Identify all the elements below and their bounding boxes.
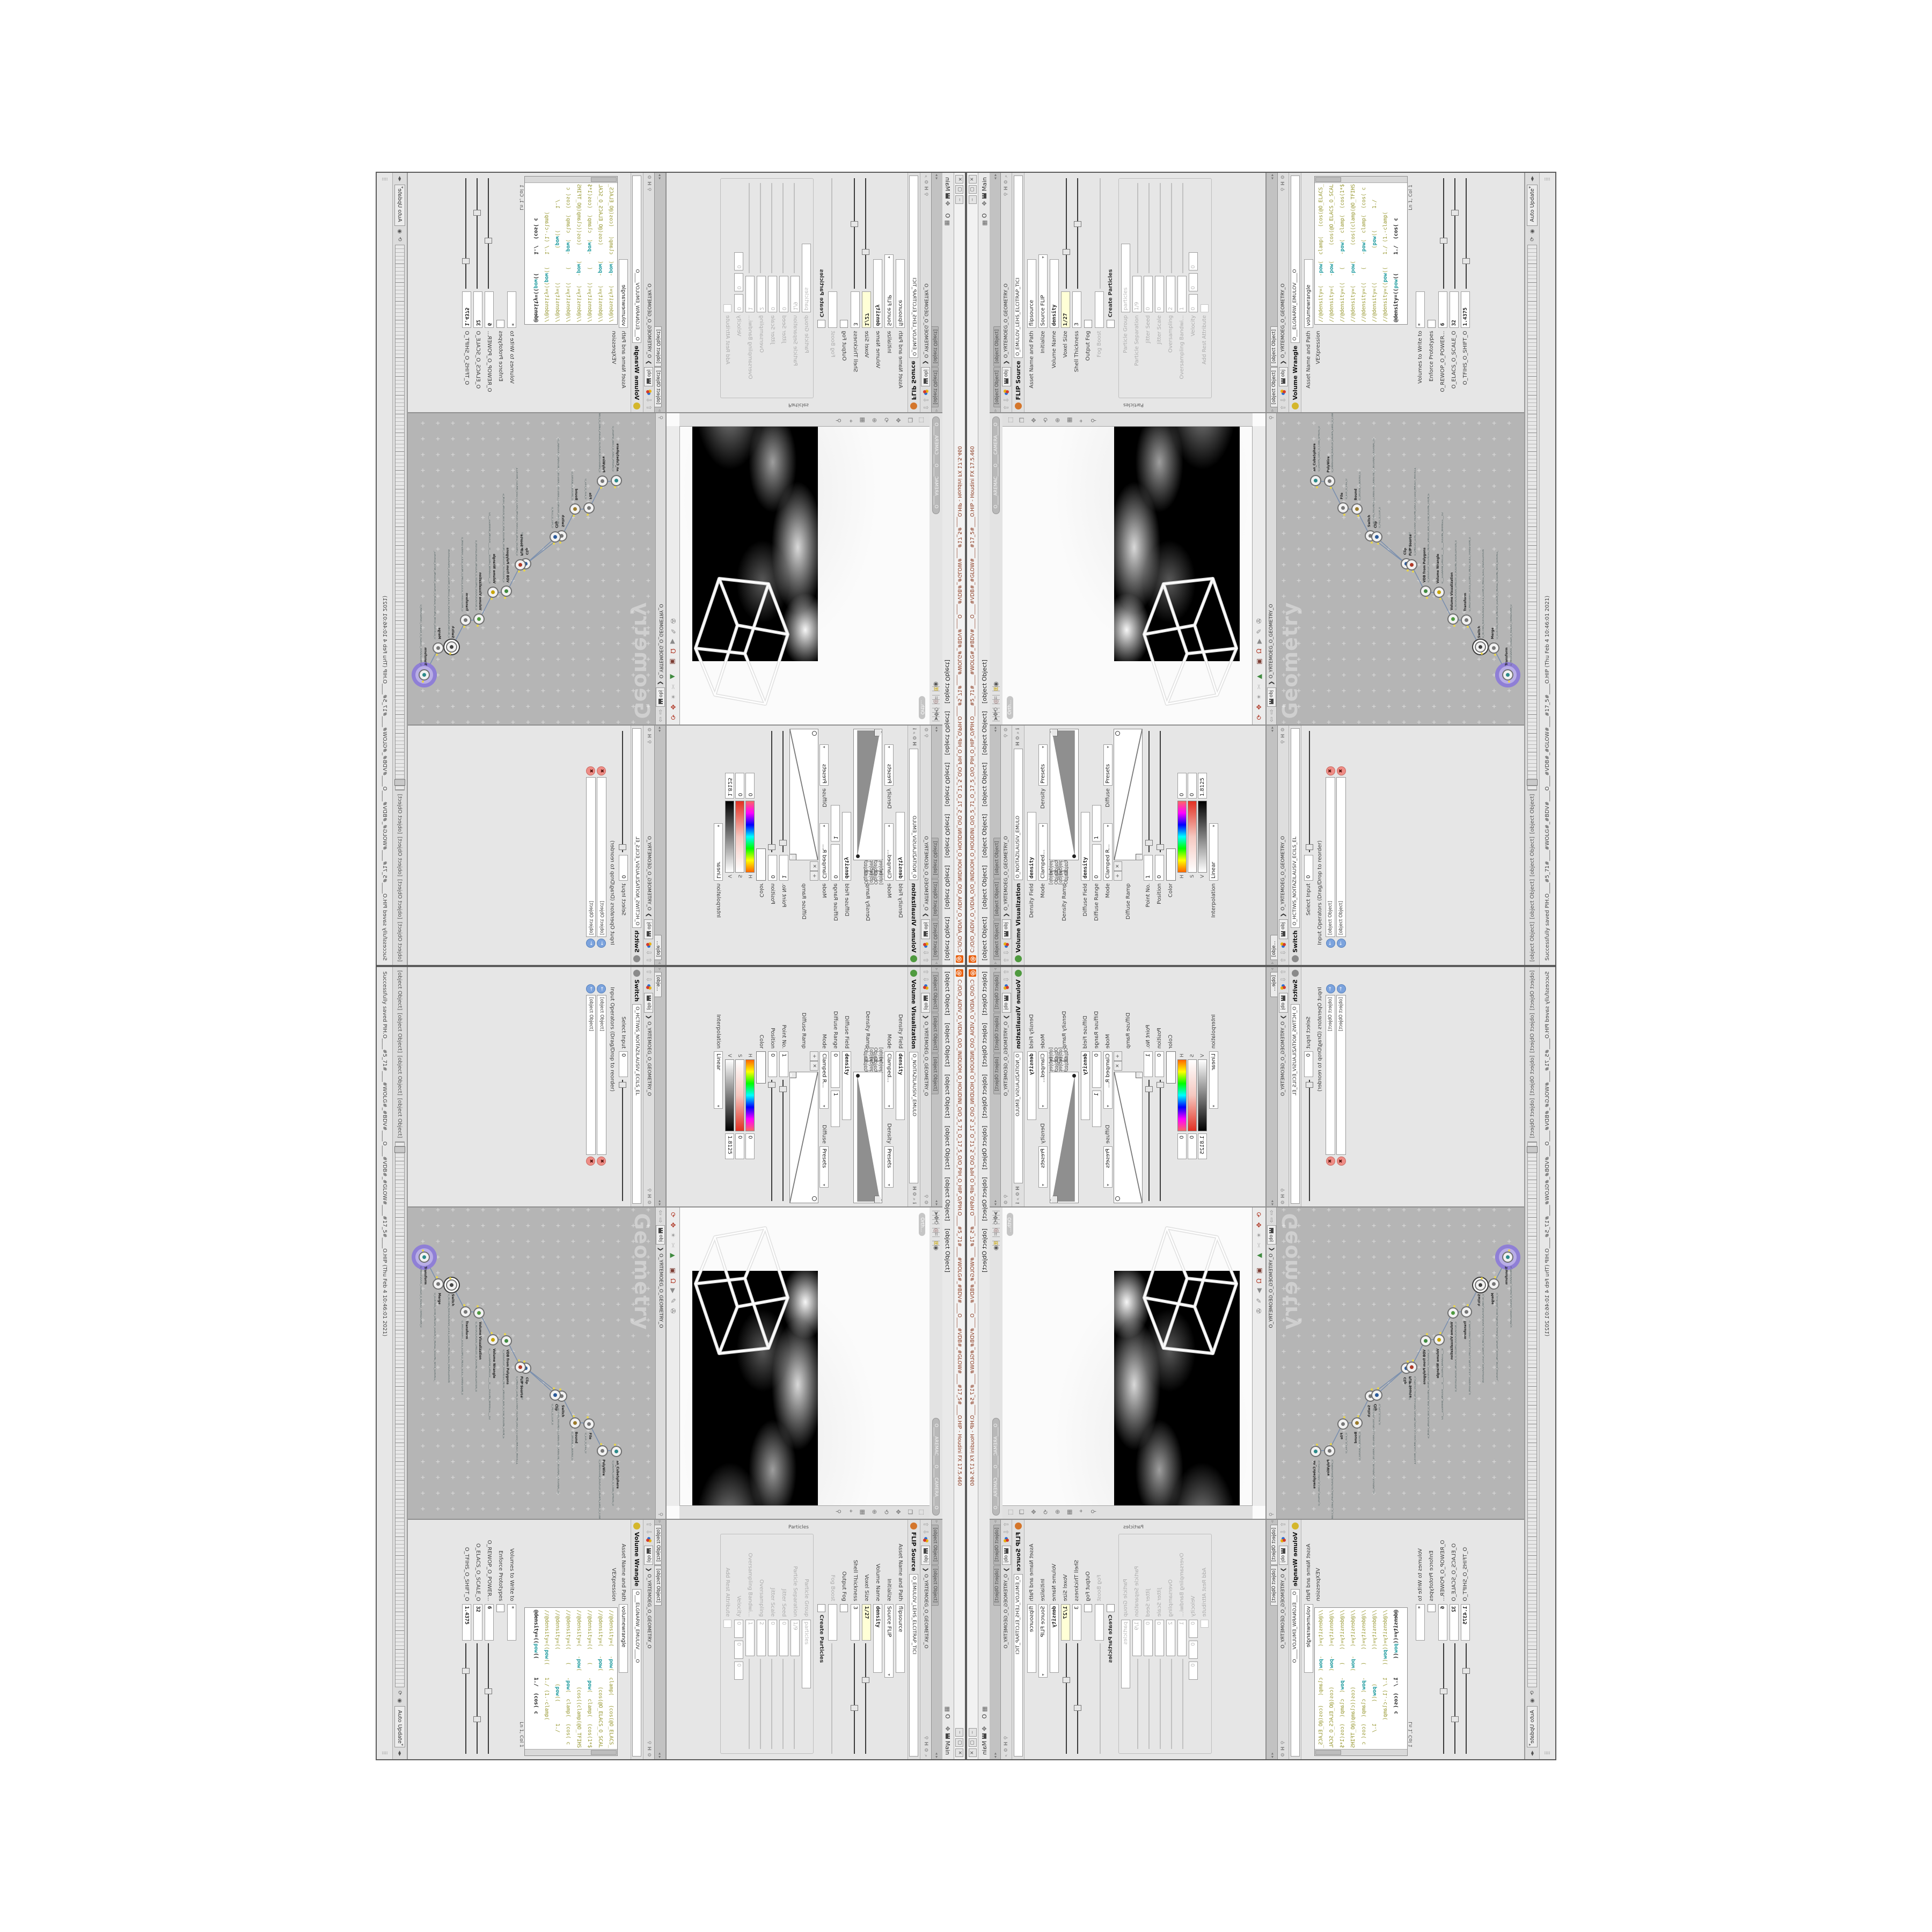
- transport-button[interactable]: [object Object]: [1529, 794, 1535, 834]
- pane-tab[interactable]: [object Object]: [932, 920, 939, 960]
- select-input-slider[interactable]: [620, 729, 627, 852]
- breadcrumb[interactable]: O_YRTEMOEG_O_GEOMETRY_O: [923, 1021, 928, 1096]
- viewport-canvas[interactable]: Orth...: [679, 426, 930, 724]
- select-input-slider[interactable]: [620, 1080, 627, 1203]
- viewport-tool-icon[interactable]: Ω: [669, 649, 677, 654]
- viewport-tool-icon[interactable]: ⟲: [883, 1509, 890, 1514]
- ramp-button[interactable]: +: [810, 1051, 818, 1061]
- point-no-slider[interactable]: [1145, 729, 1152, 852]
- oversampling-bandwidth-field[interactable]: 1: [745, 1620, 755, 1656]
- diffuse-presets-dropdown[interactable]: Presets: [819, 744, 829, 786]
- create-particles-checkbox[interactable]: [1107, 1604, 1115, 1612]
- pane-split-icon[interactable]: ▹: [934, 968, 939, 970]
- add-rest-checkbox[interactable]: [1201, 1620, 1209, 1628]
- initialize-dropdown[interactable]: Source FLIP: [884, 254, 894, 328]
- select-input-field[interactable]: 0: [1304, 855, 1313, 881]
- viewport-tool-icon[interactable]: ✎: [669, 628, 677, 634]
- nav-forward-icon[interactable]: ⇩: [1002, 397, 1010, 402]
- jitter-seed-field[interactable]: 0: [1144, 276, 1153, 312]
- network-node[interactable]: VDB from PolygonsO_SNOGYLOP_YRTEMOEG_MOR…: [1420, 586, 1431, 597]
- context-chip[interactable]: obj: [921, 367, 931, 387]
- network-node[interactable]: FLIP SourceO_EMULOV_LEHS_ELCITRAP_TICILP…: [515, 559, 526, 570]
- remove-input-icon[interactable]: ✖: [597, 766, 606, 775]
- ramp-button[interactable]: ✕: [810, 1061, 818, 1071]
- pane-tab[interactable]: [object Object]: [993, 972, 1000, 1012]
- nav-back-icon[interactable]: ⇦: [1268, 1210, 1275, 1215]
- pane-menu-icon[interactable]: ◂ ▸: [934, 174, 939, 180]
- fog-boost-slider[interactable]: [1096, 176, 1103, 289]
- output-fog-checkbox[interactable]: [1084, 320, 1092, 328]
- power-field[interactable]: 6: [1438, 1604, 1447, 1641]
- display-options-icon[interactable]: ◉: [1529, 1699, 1535, 1703]
- velocity-y-field[interactable]: 0: [734, 1641, 743, 1659]
- diffuse-range-min-input[interactable]: 0: [1092, 844, 1101, 881]
- pane-split-icon[interactable]: ▹: [1270, 968, 1275, 970]
- transport-button[interactable]: [object Object]: [397, 879, 403, 919]
- nav-forward-icon[interactable]: ⇩: [645, 950, 653, 955]
- position-slider[interactable]: [1156, 729, 1163, 852]
- viewport-tool-icon[interactable]: ✎: [669, 1298, 677, 1304]
- search-icon[interactable]: ⌕: [911, 731, 917, 734]
- viewport-tool-icon[interactable]: ⚲: [1090, 417, 1097, 422]
- pane-tab[interactable]: [object Object]: [1270, 326, 1277, 367]
- viewport-tool-icon[interactable]: ⊞: [932, 691, 940, 691]
- nav-forward-icon[interactable]: ⇩: [922, 397, 930, 402]
- asset-name-field[interactable]: flipsource: [896, 1604, 905, 1673]
- viewport-tool-icon[interactable]: ✇: [669, 1308, 677, 1314]
- viewport-tool-icon[interactable]: ✎: [1255, 1298, 1263, 1304]
- pane-arrows-icon[interactable]: ◂▸: [1529, 176, 1535, 181]
- node-name-field[interactable]: O_NOITAZILAUSIV_EMULO: [1014, 1052, 1023, 1184]
- mode-dropdown[interactable]: Clamped...: [1038, 823, 1048, 881]
- jitter-seed-field[interactable]: 0: [1144, 1620, 1153, 1656]
- network-node[interactable]: BoundO_DNUOB_O_BOUND_O: [1351, 503, 1363, 515]
- particle-separation-field[interactable]: 1/9: [1132, 276, 1141, 312]
- pin-icon[interactable]: ⚲: [658, 1512, 664, 1516]
- mode-dropdown[interactable]: Clamped...: [884, 823, 894, 881]
- jitter-seed-field[interactable]: 0: [779, 1620, 788, 1656]
- pane-tab[interactable]: [object Object]: [1270, 367, 1277, 407]
- velocity-y-field[interactable]: 0: [734, 273, 743, 291]
- voxel-size-field[interactable]: 1/27: [862, 291, 871, 328]
- asset-name-field[interactable]: flipsource: [1027, 1604, 1036, 1673]
- output-fog-checkbox[interactable]: [840, 1604, 848, 1612]
- viewport-tool-icon[interactable]: ◎: [992, 704, 1000, 704]
- asset-name-field[interactable]: volumewrangle: [1304, 1604, 1313, 1673]
- breadcrumb[interactable]: O_YRTEMOEG_O_GEOMETRY_O: [1280, 1574, 1286, 1649]
- power-slider[interactable]: [1439, 1643, 1447, 1756]
- network-node[interactable]: MergeO_ECAFRUS_HTIW_EMULOV_EGREM_O_MERGE…: [433, 642, 444, 654]
- network-node[interactable]: PolyWireO_EMANFERIW_NOGYLOP_EREHPS_EBUC_…: [1324, 475, 1335, 487]
- context-chip[interactable]: obj: [656, 1225, 665, 1245]
- menu-item[interactable]: [object Object]: [945, 1023, 952, 1067]
- position-input[interactable]: 0: [768, 1051, 777, 1077]
- viewport-tool-icon[interactable]: ✂: [1255, 1243, 1263, 1248]
- transport-button[interactable]: [object Object]: [1529, 1098, 1535, 1138]
- breadcrumb[interactable]: O_YRTEMOEG_O_GEOMETRY_O: [1004, 283, 1009, 358]
- menu-item[interactable]: [object Object]: [945, 1125, 952, 1169]
- viewport-tool-icon[interactable]: ▣: [1255, 1268, 1263, 1274]
- ramp-button[interactable]: +: [810, 871, 818, 881]
- input-operator-field[interactable]: [object Object]: [1336, 777, 1346, 937]
- oversampling-slider[interactable]: [758, 1659, 765, 1751]
- enforce-prototypes-checkbox[interactable]: [496, 320, 504, 328]
- hscript-icon[interactable]: H: [1280, 181, 1286, 186]
- context-chip[interactable]: obj: [1267, 1225, 1276, 1245]
- enforce-prototypes-checkbox[interactable]: [1428, 1604, 1436, 1612]
- viewport-tool-icon[interactable]: ⌗: [992, 1232, 1000, 1233]
- layout-selector[interactable]: ▦ O: [981, 213, 988, 225]
- node-name-field[interactable]: O_EMULOV_LEHS_ELCITRAP_TICI: [910, 175, 919, 358]
- viewport-tool-icon[interactable]: ⊕: [871, 1509, 878, 1514]
- viewport-tool-icon[interactable]: ⟲: [992, 712, 1000, 713]
- viewport-tool-icon[interactable]: ✴: [1255, 1233, 1263, 1238]
- input-operator-field[interactable]: [object Object]: [1336, 995, 1346, 1155]
- transport-button[interactable]: [object Object]: [397, 837, 403, 876]
- interpolation-dropdown[interactable]: Linear: [714, 1051, 723, 1109]
- nav-forward-icon[interactable]: ⇩: [1002, 1529, 1010, 1535]
- breadcrumb[interactable]: O_YRTEMOEG_O_GEOMETRY_O: [1280, 283, 1286, 358]
- oversampling-slider[interactable]: [758, 181, 765, 273]
- viewport-tool-icon[interactable]: ⟲: [1042, 1509, 1049, 1514]
- position-slider[interactable]: [1156, 1080, 1163, 1203]
- viewport-tool-icon[interactable]: ▲: [669, 674, 677, 679]
- nav-forward-icon[interactable]: ⇩: [1002, 950, 1010, 955]
- viewport-tool-icon[interactable]: ✥: [932, 716, 940, 717]
- view-label-pill[interactable]: Orth...: [919, 696, 925, 719]
- vex-code-editor[interactable]: //@density=( -pow( clamp( (cos(@O_ELACS_…: [524, 176, 618, 325]
- shell-thickness-slider[interactable]: [852, 1643, 859, 1756]
- pin-icon[interactable]: ⚲: [1280, 740, 1286, 744]
- pane-tab[interactable]: [object Object]: [932, 1053, 939, 1094]
- network-node[interactable]: ClipO_PILC_O_CLIP_O: [1371, 531, 1382, 543]
- hsv-gradient-slider[interactable]: [1177, 1059, 1187, 1131]
- position-slider[interactable]: [769, 1080, 777, 1203]
- viewport-tool-icon[interactable]: ✥: [1030, 417, 1037, 422]
- pane-split-icon[interactable]: ▹: [1270, 409, 1275, 411]
- voxel-size-field[interactable]: 1/27: [1061, 291, 1070, 328]
- pin-icon[interactable]: ⚲: [923, 1195, 928, 1198]
- nav-back-icon[interactable]: ⇧: [1279, 405, 1287, 410]
- playhead[interactable]: [1527, 780, 1538, 786]
- camera-selector-pill[interactable]: O____AREMAC____O____CAMERA____O: [992, 1418, 1000, 1516]
- hscript-icon[interactable]: H: [923, 186, 928, 191]
- network-node[interactable]: VDB from PolygonsO_SNOGYLOP_YRTEMOEG_MOR…: [501, 1335, 512, 1346]
- viewport-tool-icon[interactable]: ⬚: [1007, 417, 1014, 422]
- add-rest-checkbox[interactable]: [723, 1620, 731, 1628]
- diffuse-presets-dropdown[interactable]: Presets: [1103, 744, 1113, 786]
- viewport-tool-icon[interactable]: ▣: [1255, 658, 1263, 664]
- interpolation-dropdown[interactable]: Linear: [1209, 823, 1218, 881]
- gear-icon[interactable]: ⚙: [1280, 1753, 1286, 1757]
- volume-name-field[interactable]: density: [1050, 259, 1059, 328]
- hscript-icon[interactable]: H: [1280, 1746, 1286, 1751]
- hscript-icon[interactable]: H: [646, 734, 652, 738]
- velocity-z-field[interactable]: 0: [1189, 1662, 1198, 1680]
- viewport-tool-icon[interactable]: ✥: [1255, 704, 1263, 709]
- jitter-seed-slider[interactable]: [1145, 181, 1152, 273]
- breadcrumb[interactable]: O_YRTEMOEG_O_GEOMETRY_O: [1004, 1021, 1009, 1096]
- reorder-arrow-icon[interactable]: ←: [1326, 939, 1335, 948]
- network-canvas[interactable]: an_CubeSphereO_EREHPS_EBUC_O_CUBE_SPHERE…: [1277, 413, 1524, 724]
- scale-field[interactable]: 32: [1450, 291, 1459, 328]
- context-chip[interactable]: obj: [645, 1546, 654, 1565]
- hscript-icon[interactable]: H: [1015, 1186, 1021, 1190]
- shift-field[interactable]: 1.4375: [462, 1604, 471, 1641]
- gear-icon[interactable]: ⚙: [923, 1200, 928, 1204]
- pane-tab[interactable]: [object Object]: [655, 935, 662, 960]
- nav-back-icon[interactable]: ⇧: [1002, 969, 1010, 975]
- position-slider[interactable]: [769, 729, 777, 852]
- nav-forward-icon[interactable]: ⇩: [1279, 1529, 1287, 1535]
- pin-icon[interactable]: ⚲: [658, 415, 664, 419]
- viewport-tool-icon[interactable]: ▦: [859, 417, 866, 422]
- fog-boost-slider[interactable]: [829, 1643, 837, 1756]
- nav-back-icon[interactable]: ⇦: [657, 1210, 664, 1215]
- initialize-dropdown[interactable]: Source FLIP: [1038, 254, 1048, 328]
- nav-back-icon[interactable]: ⇧: [645, 405, 653, 410]
- network-node[interactable]: TransformO_MROFSNART_ECILS_ELDIM_O_MIDLE…: [460, 614, 471, 626]
- hscript-icon[interactable]: H: [1280, 1194, 1286, 1198]
- viewport-tool-icon[interactable]: ❐: [906, 1509, 913, 1514]
- node-name-field[interactable]: O_EMULOV_LEHS_ELCITRAP_TICI: [1014, 1574, 1023, 1757]
- context-chip[interactable]: obj: [1267, 687, 1276, 707]
- output-fog-checkbox[interactable]: [1084, 1604, 1092, 1612]
- oversampling-field[interactable]: 2: [1166, 1620, 1175, 1656]
- transport-button[interactable]: [object Object]: [1529, 1013, 1535, 1052]
- viewport-tool-icon[interactable]: ▣: [669, 1268, 677, 1274]
- reorder-arrow-icon[interactable]: ←: [597, 939, 606, 948]
- oversampling-slider[interactable]: [1167, 1659, 1175, 1751]
- info-icon[interactable]: ℹ: [911, 1202, 917, 1204]
- info-icon[interactable]: ℹ: [911, 728, 917, 730]
- reorder-arrow-icon[interactable]: ←: [1337, 939, 1346, 948]
- viewport-tool-icon[interactable]: ✴: [669, 694, 677, 699]
- resize-grip[interactable]: ⣿: [1545, 1751, 1550, 1755]
- breadcrumb[interactable]: O_YRTEMOEG_O_GEOMETRY_O: [1004, 836, 1009, 911]
- refresh-icon[interactable]: ⟳: [397, 1690, 403, 1695]
- pane-menu-icon[interactable]: ◂ ▸: [657, 174, 662, 180]
- resize-grip[interactable]: ⣿: [382, 1751, 387, 1755]
- breadcrumb[interactable]: O_YRTEMOEG_O_GEOMETRY_O: [646, 1574, 652, 1649]
- search-icon[interactable]: ⌕: [1015, 731, 1021, 734]
- breadcrumb[interactable]: O_YRTEMOEG_O_GEOMETRY_O: [1004, 1574, 1009, 1649]
- network-node[interactable]: FileO_ELIF_O_FILE_O: [583, 1418, 595, 1430]
- pane-menu-icon[interactable]: ◂ ▸: [1270, 1752, 1275, 1758]
- density-field-input[interactable]: density: [1027, 812, 1036, 881]
- transport-button[interactable]: [object Object]: [1529, 1056, 1535, 1095]
- oversampling-slider[interactable]: [1167, 181, 1175, 273]
- node-name-field[interactable]: O_HCTIWS_NOITAZILAUSIV_ECILS_EL: [1291, 1004, 1300, 1204]
- hsv-value-input[interactable]: 0: [735, 773, 744, 799]
- hsv-gradient-slider[interactable]: [1177, 801, 1187, 873]
- pin-icon[interactable]: ⚲: [1280, 1741, 1286, 1745]
- pane-tab[interactable]: [object Object]: [993, 838, 1000, 878]
- layout-selector[interactable]: ▦ O: [981, 1706, 988, 1718]
- camera-selector-pill[interactable]: O____AREMAC____O____CAMERA____O: [932, 1418, 940, 1516]
- input-operator-field[interactable]: [object Object]: [1326, 777, 1335, 937]
- breadcrumb[interactable]: O_YRTEMOEG_O_GEOMETRY_O: [646, 1021, 652, 1096]
- pane-menu-icon[interactable]: ◂ ▸: [934, 727, 939, 733]
- ramp-button[interactable]: [object Object]: [874, 861, 882, 871]
- gear-icon[interactable]: ⚙: [1280, 728, 1286, 732]
- reorder-arrow-icon[interactable]: ←: [1326, 984, 1335, 993]
- diffuse-ramp-widget[interactable]: [1114, 729, 1143, 860]
- pane-split-icon[interactable]: ▹: [934, 409, 939, 411]
- viewport-tool-icon[interactable]: Ω: [669, 1278, 677, 1283]
- viewport-tool-icon[interactable]: ⌗: [932, 1232, 940, 1233]
- viewport-tool-icon[interactable]: ✥: [895, 1509, 902, 1514]
- context-chip[interactable]: obj: [645, 993, 654, 1013]
- search-icon[interactable]: ⌕: [923, 175, 928, 178]
- nav-forward-icon[interactable]: ⇩: [922, 950, 930, 955]
- transport-button[interactable]: [object Object]: [397, 1098, 403, 1138]
- pin-icon[interactable]: ⚲: [1269, 415, 1275, 419]
- node-name-field[interactable]: O___ELGNARW_EMULOV____O: [633, 1589, 642, 1757]
- menu-item[interactable]: [object Object]: [945, 1228, 952, 1272]
- pane-tab[interactable]: [object Object]: [655, 1565, 662, 1606]
- nav-forward-icon[interactable]: ⇨: [1268, 709, 1275, 714]
- diffuse-ramp-widget[interactable]: [789, 1072, 818, 1203]
- network-node[interactable]: BoundO_DNUOB_O_BOUND_O: [1351, 1417, 1363, 1429]
- pane-arrows-icon[interactable]: ◂▸: [397, 1751, 403, 1756]
- ramp-button[interactable]: ✕: [1114, 1061, 1122, 1071]
- network-node[interactable]: MergeO_ECAFRUS_HTIW_EMULOV_EGREM_O_MERGE…: [1488, 642, 1499, 654]
- network-node[interactable]: MergeO_ECAFRUS_HTIW_EMULOV_EGREM_O_MERGE…: [433, 1278, 444, 1290]
- hsv-gradient-slider[interactable]: [1188, 1059, 1197, 1131]
- node-name-field[interactable]: O___ELGNARW_EMULOV____O: [633, 175, 642, 343]
- viewport-tool-icon[interactable]: ◉: [992, 1245, 1000, 1246]
- initialize-dropdown[interactable]: Source FLIP: [1038, 1604, 1048, 1678]
- close-button[interactable]: ✕: [956, 1748, 964, 1757]
- shell-thickness-slider[interactable]: [852, 176, 859, 289]
- viewport-canvas[interactable]: Orth...: [679, 1207, 930, 1505]
- maximize-button[interactable]: ▢: [969, 1738, 977, 1747]
- menu-item[interactable]: [object Object]: [945, 1177, 952, 1221]
- node-name-field[interactable]: O_EMULOV_LEHS_ELCITRAP_TICI: [1014, 175, 1023, 358]
- network-path[interactable]: O_YRTEMOEG_O_GEOMETRY_O: [1269, 1254, 1274, 1328]
- display-options-icon[interactable]: ◉: [397, 1699, 403, 1703]
- minimize-button[interactable]: ‒: [969, 1728, 977, 1737]
- hsv-value-input[interactable]: 0: [745, 1133, 755, 1159]
- jitter-scale-field[interactable]: 0: [768, 1620, 777, 1656]
- position-input[interactable]: 0: [768, 855, 777, 881]
- diffuse-range-min-input[interactable]: 0: [1092, 1051, 1101, 1088]
- viewport-tool-icon[interactable]: ◎: [932, 704, 940, 704]
- particle-group-field[interactable]: particles: [802, 244, 811, 312]
- viewport-tool-icon[interactable]: ⚲: [835, 417, 842, 422]
- shell-thickness-slider[interactable]: [1073, 1643, 1081, 1756]
- shift-field[interactable]: 1.4375: [1461, 1604, 1470, 1641]
- velocity-x-field[interactable]: 0: [734, 1620, 743, 1638]
- nav-forward-icon[interactable]: ⇩: [1002, 977, 1010, 982]
- pane-tab[interactable]: [object Object]: [993, 367, 1000, 407]
- pane-tab[interactable]: [object Object]: [932, 1525, 939, 1565]
- scale-field[interactable]: 32: [1450, 1604, 1459, 1641]
- oversampling-field[interactable]: 2: [757, 1620, 766, 1656]
- volumes-to-write-field[interactable]: *: [1416, 1604, 1425, 1641]
- diffuse-ramp-widget[interactable]: [1114, 1072, 1143, 1203]
- velocity-z-field[interactable]: 0: [734, 252, 743, 270]
- shift-slider[interactable]: [463, 1643, 471, 1756]
- viewport-tool-icon[interactable]: ⊕: [1054, 417, 1061, 422]
- auto-update-dropdown[interactable]: Auto Update: [394, 1706, 405, 1747]
- pane-arrows-icon[interactable]: ◂▸: [397, 176, 403, 181]
- minimize-button[interactable]: ‒: [956, 1728, 964, 1737]
- pane-split-icon[interactable]: ▹: [993, 1521, 998, 1523]
- oversampling-bandwidth-field[interactable]: 1: [745, 276, 755, 312]
- ramp-button[interactable]: [object Object]: [864, 861, 873, 871]
- volumes-to-write-field[interactable]: *: [1416, 291, 1425, 328]
- minimize-button[interactable]: ‒: [956, 195, 964, 204]
- gear-icon[interactable]: ⚙: [1015, 1192, 1021, 1196]
- viewport-tool-icon[interactable]: ⟲: [992, 1219, 1000, 1220]
- hscript-icon[interactable]: H: [1004, 186, 1009, 191]
- gear-icon[interactable]: ⚙: [646, 1753, 652, 1757]
- diffuse-field-input[interactable]: density: [1081, 812, 1090, 881]
- diffuse-presets-dropdown[interactable]: Presets: [819, 1146, 829, 1188]
- viewport-tool-icon[interactable]: ⊕: [871, 417, 878, 422]
- pane-menu-icon[interactable]: ◂ ▸: [657, 1200, 662, 1206]
- remove-input-icon[interactable]: ✖: [1337, 1157, 1346, 1166]
- pane-tab[interactable]: [object Object]: [932, 1013, 939, 1053]
- gear-icon[interactable]: ⚙: [923, 1748, 928, 1752]
- color-swatch[interactable]: [1166, 848, 1176, 881]
- pane-tab[interactable]: [object Object]: [932, 1565, 939, 1606]
- point-no-slider[interactable]: [780, 729, 788, 852]
- gear-icon[interactable]: ⚙: [1004, 1200, 1009, 1204]
- pane-tab[interactable]: [object Object]: [993, 920, 1000, 960]
- node-name-field[interactable]: O_EMULOV_LEHS_ELCITRAP_TICI: [910, 1574, 919, 1757]
- resize-grip[interactable]: ⣿: [1545, 177, 1550, 181]
- menu-item[interactable]: [object Object]: [981, 1023, 988, 1067]
- transport-button[interactable]: [object Object]: [397, 970, 403, 1010]
- jitter-scale-field[interactable]: 0: [1155, 1620, 1164, 1656]
- pane-menu-icon[interactable]: ◂ ▸: [657, 1752, 662, 1758]
- gear-icon[interactable]: ⚙: [1280, 1200, 1286, 1204]
- hsv-value-input[interactable]: 0: [1188, 1133, 1197, 1159]
- nav-forward-icon[interactable]: ⇩: [1279, 950, 1287, 955]
- menu-item[interactable]: [object Object]: [981, 1125, 988, 1169]
- network-path[interactable]: O_YRTEMOEG_O_GEOMETRY_O: [1269, 604, 1274, 678]
- gear-icon[interactable]: ⚙: [646, 175, 652, 179]
- reorder-arrow-icon[interactable]: ←: [587, 984, 596, 993]
- viewport-tool-icon[interactable]: ⊞: [992, 1241, 1000, 1241]
- ramp-button[interactable]: [object Object]: [1059, 861, 1068, 871]
- jitter-seed-slider[interactable]: [1145, 1659, 1152, 1751]
- viewport-tool-icon[interactable]: ▦: [1066, 1509, 1073, 1514]
- network-canvas[interactable]: an_CubeSphereO_EREHPS_EBUC_O_CUBE_SPHERE…: [408, 413, 655, 724]
- menu-item[interactable]: [object Object]: [945, 1074, 952, 1118]
- network-node[interactable]: VDB from PolygonsO_SNOGYLOP_YRTEMOEG_MOR…: [1420, 1335, 1431, 1346]
- breadcrumb[interactable]: O_YRTEMOEG_O_GEOMETRY_O: [646, 836, 652, 911]
- hsv-gradient-slider[interactable]: [1188, 801, 1197, 873]
- display-options-icon[interactable]: ◉: [397, 229, 403, 234]
- select-input-field[interactable]: 0: [619, 1051, 628, 1077]
- gear-icon[interactable]: ⚙: [923, 180, 928, 184]
- network-canvas[interactable]: an_CubeSphereO_EREHPS_EBUC_O_CUBE_SPHERE…: [1277, 1207, 1524, 1518]
- nav-back-icon[interactable]: ⇧: [1279, 957, 1287, 963]
- color-swatch[interactable]: [757, 848, 766, 881]
- scale-field[interactable]: 32: [473, 291, 482, 328]
- context-chip[interactable]: obj: [1002, 367, 1011, 387]
- nav-forward-icon[interactable]: ⇩: [922, 1529, 930, 1535]
- playhead[interactable]: [394, 780, 405, 786]
- minimize-button[interactable]: ‒: [969, 195, 977, 204]
- viewport-tool-icon[interactable]: ⬚: [918, 417, 925, 422]
- pane-menu-icon[interactable]: ◂ ▸: [1270, 174, 1275, 180]
- power-field[interactable]: 6: [1438, 291, 1447, 328]
